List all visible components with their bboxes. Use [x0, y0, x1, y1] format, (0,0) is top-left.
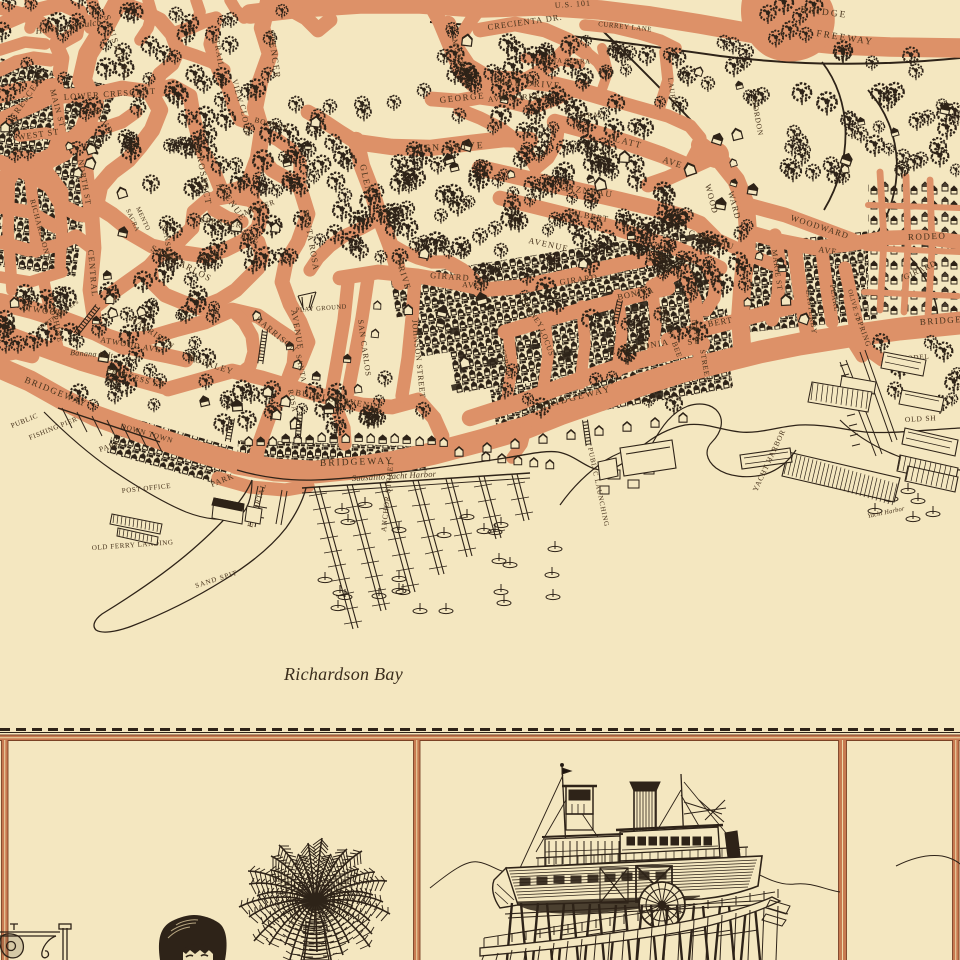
svg-text:AVE: AVE	[462, 280, 481, 290]
svg-text:AVE: AVE	[200, 252, 220, 262]
svg-text:Richardson Bay: Richardson Bay	[283, 664, 403, 684]
svg-text:RODEO: RODEO	[908, 231, 947, 242]
svg-text:OLD SH: OLD SH	[905, 413, 937, 424]
svg-text:WRAY: WRAY	[580, 110, 604, 120]
